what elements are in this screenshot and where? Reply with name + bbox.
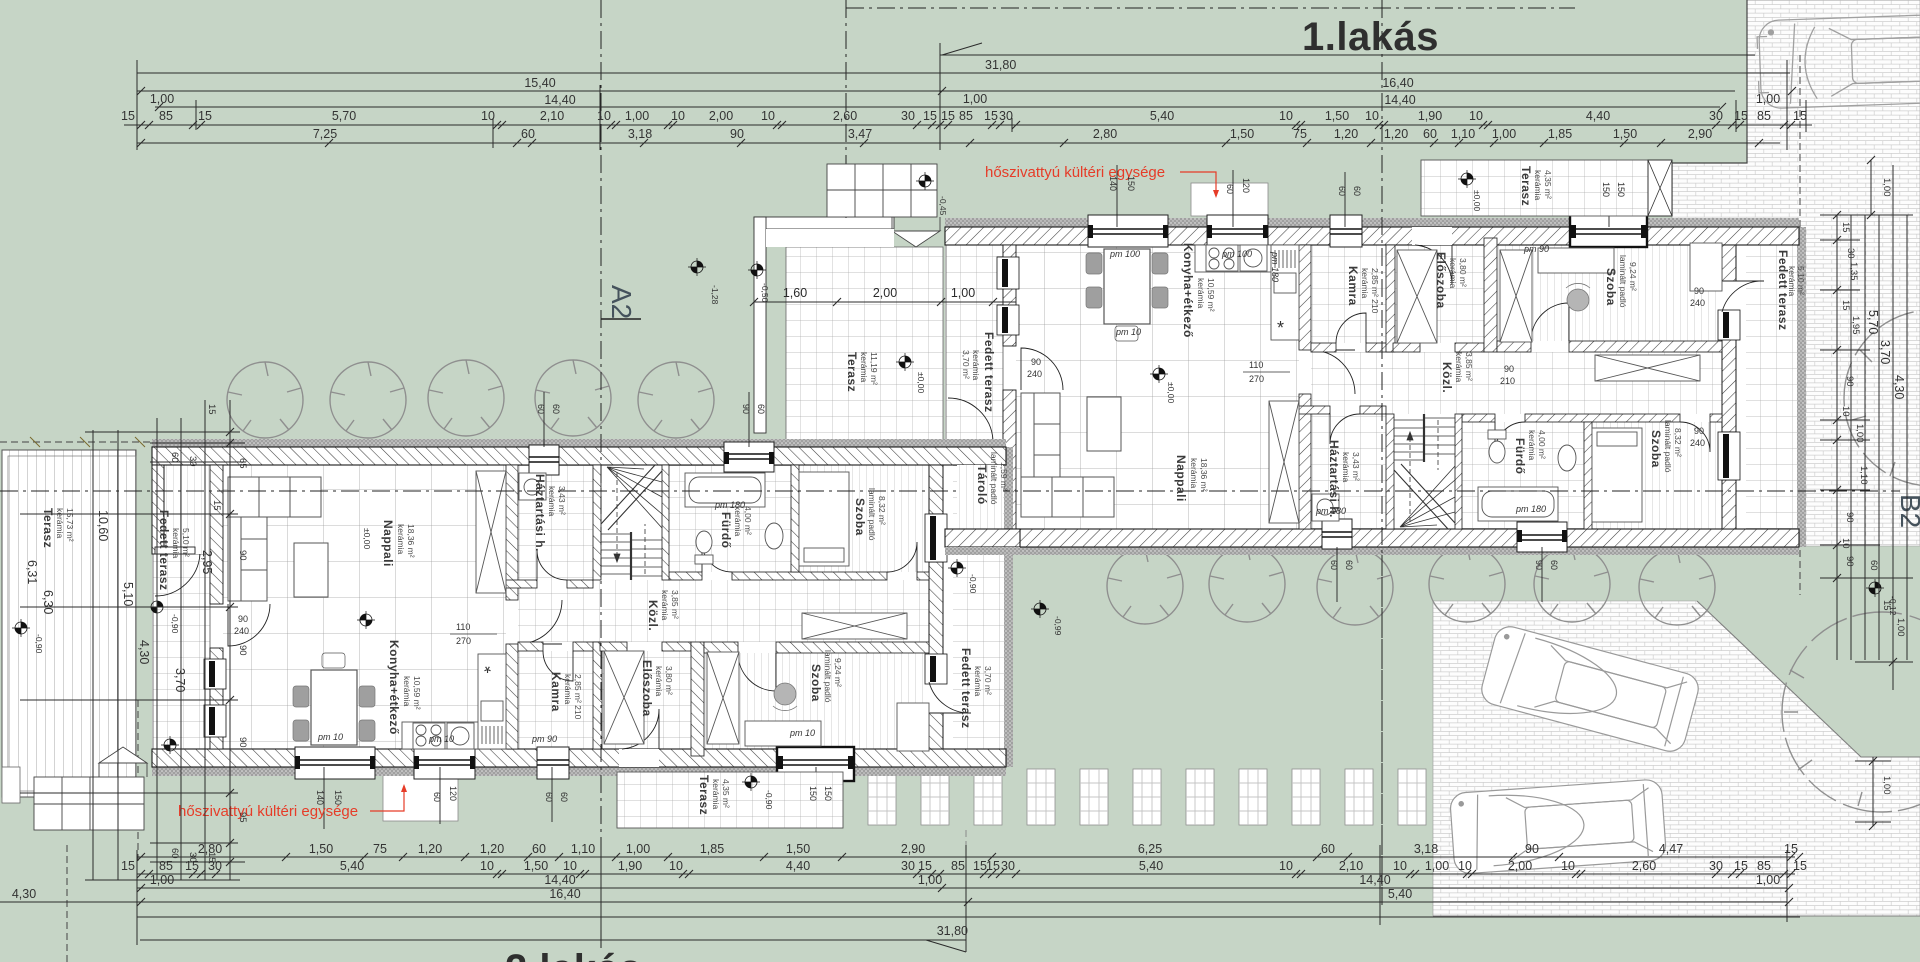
svg-text:90: 90 (1844, 376, 1855, 387)
svg-text:150: 150 (808, 786, 818, 801)
svg-text:60: 60 (551, 404, 561, 414)
svg-text:Szoba: Szoba (1649, 430, 1663, 468)
svg-text:1,00: 1,00 (951, 286, 975, 300)
svg-text:5,70: 5,70 (1866, 310, 1880, 334)
svg-text:Fedett terasz: Fedett terasz (959, 648, 973, 729)
svg-text:laminált padló: laminált padló (867, 488, 877, 541)
svg-text:15: 15 (211, 500, 222, 511)
svg-text:10: 10 (481, 109, 495, 123)
svg-text:60: 60 (544, 792, 554, 802)
svg-text:2,95: 2,95 (200, 550, 214, 574)
svg-text:60: 60 (1352, 186, 1362, 196)
svg-text:90: 90 (1031, 357, 1041, 367)
svg-text:14,40: 14,40 (544, 93, 575, 107)
svg-text:15: 15 (918, 859, 932, 873)
svg-text:85: 85 (1757, 859, 1771, 873)
svg-text:-0,99: -0,99 (1053, 616, 1063, 636)
svg-text:hőszivattyú kültéri egysége: hőszivattyú kültéri egysége (985, 164, 1165, 181)
svg-text:210: 210 (1500, 376, 1515, 386)
svg-text:1,10: 1,10 (1858, 466, 1869, 485)
svg-text:1,50: 1,50 (1230, 127, 1254, 141)
svg-text:14,40: 14,40 (1384, 93, 1415, 107)
svg-text:Kamra: Kamra (549, 672, 563, 712)
svg-text:15,40: 15,40 (524, 76, 555, 90)
svg-text:2.lakás: 2.lakás (505, 947, 642, 962)
svg-text:*: * (1277, 318, 1284, 338)
svg-text:Szoba: Szoba (853, 498, 867, 536)
svg-text:16,40: 16,40 (549, 887, 580, 901)
svg-text:1,20: 1,20 (1384, 127, 1408, 141)
svg-text:1,90: 1,90 (1418, 109, 1442, 123)
svg-text:kerámia: kerámia (1448, 258, 1458, 289)
svg-text:1,20: 1,20 (1334, 127, 1358, 141)
svg-text:15,73 m²: 15,73 m² (65, 508, 75, 542)
svg-text:pm 180: pm 180 (714, 500, 745, 510)
svg-text:1,10: 1,10 (1451, 127, 1475, 141)
svg-text:120: 120 (448, 786, 458, 801)
svg-text:2,90: 2,90 (901, 842, 925, 856)
svg-text:90: 90 (1525, 842, 1539, 856)
svg-text:15: 15 (986, 859, 1000, 873)
svg-text:240: 240 (234, 626, 249, 636)
svg-text:140: 140 (1108, 176, 1118, 191)
svg-text:9,24 m²: 9,24 m² (833, 658, 843, 687)
svg-text:pm 180: pm 180 (1270, 251, 1280, 282)
svg-text:pm 100: pm 100 (1109, 249, 1140, 259)
svg-text:10: 10 (563, 859, 577, 873)
svg-text:Konyha+étkező: Konyha+étkező (387, 640, 401, 735)
svg-text:60: 60 (169, 848, 180, 859)
svg-text:1,60: 1,60 (783, 286, 807, 300)
svg-text:10: 10 (1469, 109, 1483, 123)
svg-text:60: 60 (536, 404, 546, 414)
svg-text:2,60: 2,60 (833, 109, 857, 123)
svg-text:110: 110 (456, 622, 470, 632)
svg-text:4,40: 4,40 (1586, 109, 1610, 123)
svg-text:Terasz: Terasz (1519, 166, 1533, 206)
svg-text:10: 10 (1840, 538, 1851, 549)
svg-text:5,10 m²: 5,10 m² (181, 528, 191, 557)
svg-text:1,00: 1,00 (1756, 873, 1780, 887)
svg-text:15: 15 (984, 109, 998, 123)
svg-text:1,95: 1,95 (1850, 316, 1861, 335)
svg-text:Nappali: Nappali (381, 520, 395, 567)
svg-text:30: 30 (187, 456, 198, 467)
svg-text:Kamra: Kamra (1346, 266, 1360, 306)
svg-text:kerámia: kerámia (55, 508, 65, 539)
svg-text:10: 10 (480, 859, 494, 873)
svg-text:kerámia: kerámia (1787, 266, 1797, 297)
svg-text:Fürdő: Fürdő (1513, 438, 1527, 475)
svg-text:31,80: 31,80 (985, 58, 1016, 72)
svg-text:±0,00: ±0,00 (916, 372, 926, 393)
svg-text:240: 240 (1690, 438, 1705, 448)
svg-text:10: 10 (1279, 859, 1293, 873)
svg-text:1,00: 1,00 (1756, 92, 1780, 106)
svg-text:15: 15 (941, 109, 955, 123)
svg-text:85: 85 (159, 109, 173, 123)
svg-text:90: 90 (730, 127, 744, 141)
svg-text:1,00: 1,00 (626, 842, 650, 856)
svg-text:15: 15 (1793, 109, 1807, 123)
svg-text:±0,00: ±0,00 (1472, 190, 1482, 211)
svg-text:Fedett terasz: Fedett terasz (157, 510, 171, 591)
svg-text:Terasz: Terasz (697, 775, 711, 815)
svg-text:2,00: 2,00 (709, 109, 733, 123)
svg-text:60: 60 (169, 452, 180, 463)
svg-text:Szoba: Szoba (1604, 268, 1618, 306)
svg-text:Konyha+étkező: Konyha+étkező (1181, 243, 1195, 338)
svg-text:5,40: 5,40 (1388, 887, 1412, 901)
svg-text:1,35: 1,35 (1848, 262, 1859, 281)
svg-text:pm 10: pm 10 (1115, 327, 1141, 337)
svg-text:pm 10: pm 10 (428, 734, 454, 744)
svg-text:65: 65 (237, 458, 248, 469)
svg-text:Terasz: Terasz (845, 352, 859, 392)
svg-text:kerámia: kerámia (1189, 458, 1199, 489)
svg-text:11,19 m²: 11,19 m² (869, 352, 879, 385)
svg-text:150: 150 (1616, 182, 1626, 197)
svg-text:60: 60 (532, 842, 546, 856)
svg-text:30: 30 (187, 852, 198, 863)
svg-text:90: 90 (238, 614, 248, 624)
svg-text:1,10: 1,10 (571, 842, 595, 856)
svg-text:15: 15 (1881, 600, 1892, 611)
svg-text:-0,90: -0,90 (170, 614, 180, 634)
svg-text:10: 10 (1393, 859, 1407, 873)
svg-text:120: 120 (1241, 178, 1251, 193)
svg-text:2,10: 2,10 (540, 109, 564, 123)
svg-text:10: 10 (1458, 859, 1472, 873)
svg-text:1,00: 1,00 (625, 109, 649, 123)
svg-text:1,00: 1,00 (1425, 859, 1449, 873)
svg-text:5,10: 5,10 (121, 582, 135, 606)
svg-text:90: 90 (1694, 286, 1704, 296)
svg-text:5,70: 5,70 (332, 109, 356, 123)
svg-text:4,30: 4,30 (12, 887, 36, 901)
svg-text:pm 180: pm 180 (1315, 506, 1346, 516)
svg-text:4,30: 4,30 (1892, 375, 1906, 399)
svg-text:5,40: 5,40 (1150, 109, 1174, 123)
svg-text:1,00: 1,00 (1881, 776, 1892, 795)
svg-text:A2: A2 (606, 285, 637, 319)
svg-text:kerámia: kerámia (733, 506, 743, 537)
svg-text:7,25: 7,25 (313, 127, 337, 141)
svg-text:10: 10 (1279, 109, 1293, 123)
svg-text:60: 60 (1868, 560, 1879, 571)
svg-text:3,80 m²: 3,80 m² (664, 666, 674, 695)
svg-text:pm 10: pm 10 (789, 728, 815, 738)
svg-text:Előszoba: Előszoba (1434, 252, 1448, 309)
svg-text:60: 60 (1225, 184, 1235, 194)
svg-text:1,00: 1,00 (1895, 618, 1906, 637)
svg-text:10: 10 (761, 109, 775, 123)
svg-text:Előszoba: Előszoba (640, 660, 654, 717)
svg-text:240: 240 (1027, 369, 1042, 379)
svg-text:5,40: 5,40 (1139, 859, 1163, 873)
svg-text:-0,90: -0,90 (968, 574, 978, 594)
svg-text:Közl.: Közl. (646, 600, 660, 631)
svg-text:60: 60 (1344, 560, 1354, 570)
svg-text:kerámia: kerámia (654, 666, 664, 697)
svg-text:Háztartási h.: Háztartási h. (533, 474, 547, 552)
svg-text:1.lakás: 1.lakás (1302, 15, 1439, 59)
svg-text:2,90: 2,90 (1688, 127, 1712, 141)
svg-text:10: 10 (1561, 859, 1575, 873)
svg-text:15: 15 (1840, 222, 1851, 233)
svg-text:1,20: 1,20 (418, 842, 442, 856)
svg-text:3,47: 3,47 (848, 127, 872, 141)
svg-text:1,50: 1,50 (1325, 109, 1349, 123)
svg-text:15: 15 (1734, 859, 1748, 873)
svg-text:pm 100: pm 100 (1221, 249, 1252, 259)
svg-text:60: 60 (1423, 127, 1437, 141)
svg-text:150: 150 (333, 790, 343, 805)
svg-text:kerámia: kerámia (396, 524, 406, 555)
svg-text:18,36 m²: 18,36 m² (1199, 458, 1209, 492)
svg-text:30: 30 (1001, 859, 1015, 873)
svg-text:pm 10: pm 10 (317, 732, 343, 742)
svg-text:90: 90 (237, 737, 248, 748)
svg-text:1,85: 1,85 (1548, 127, 1572, 141)
svg-text:3,85 m²: 3,85 m² (1464, 352, 1474, 381)
svg-text:1,50: 1,50 (786, 842, 810, 856)
svg-text:kerámia: kerámia (563, 674, 573, 705)
svg-text:2,00: 2,00 (1508, 859, 1532, 873)
svg-text:Nappali: Nappali (1174, 455, 1188, 502)
svg-text:270: 270 (456, 636, 471, 646)
svg-text:1,50: 1,50 (1613, 127, 1637, 141)
svg-text:kerámia: kerámia (1533, 170, 1543, 201)
svg-text:30: 30 (901, 859, 915, 873)
svg-text:Fürdő: Fürdő (719, 512, 733, 549)
svg-text:3,70: 3,70 (1878, 340, 1892, 364)
svg-text:-0,90: -0,90 (34, 634, 44, 654)
svg-text:30: 30 (999, 109, 1013, 123)
svg-text:240: 240 (1690, 298, 1705, 308)
svg-text:4,30: 4,30 (137, 640, 151, 664)
svg-text:30: 30 (901, 109, 915, 123)
svg-text:90: 90 (741, 404, 751, 414)
svg-text:90: 90 (1844, 556, 1855, 567)
svg-text:90: 90 (1694, 426, 1704, 436)
svg-text:1,20: 1,20 (480, 842, 504, 856)
svg-text:-0,50: -0,50 (760, 283, 770, 303)
svg-text:4,00 m²: 4,00 m² (743, 506, 753, 535)
svg-text:4,47: 4,47 (1659, 842, 1683, 856)
svg-text:3,85 m²: 3,85 m² (670, 590, 680, 619)
svg-text:Tároló: Tároló (975, 465, 989, 505)
svg-text:3,43 m²: 3,43 m² (557, 486, 567, 515)
svg-text:1,00: 1,00 (963, 92, 987, 106)
svg-text:laminált padló: laminált padló (823, 650, 833, 703)
svg-text:10,59 m²: 10,59 m² (412, 676, 422, 710)
svg-text:30: 30 (1709, 109, 1723, 123)
svg-text:90: 90 (237, 550, 248, 561)
svg-text:kerámia: kerámia (660, 590, 670, 621)
svg-text:laminált padló: laminált padló (989, 452, 999, 505)
svg-text:14,40: 14,40 (1359, 873, 1390, 887)
svg-text:15: 15 (973, 859, 987, 873)
svg-text:-1,28: -1,28 (710, 285, 720, 305)
svg-text:8,32 m²: 8,32 m² (1673, 428, 1683, 457)
svg-text:3,43 m²: 3,43 m² (1351, 452, 1361, 481)
svg-text:pm 90: pm 90 (1523, 244, 1549, 254)
svg-text:85: 85 (159, 859, 173, 873)
svg-text:15: 15 (1734, 109, 1748, 123)
svg-text:3,18: 3,18 (1414, 842, 1438, 856)
svg-text:1,50: 1,50 (309, 842, 333, 856)
svg-text:6,31: 6,31 (25, 560, 39, 584)
svg-text:3,70 m²: 3,70 m² (961, 350, 971, 379)
svg-text:31,80: 31,80 (937, 924, 968, 938)
svg-text:-0,45: -0,45 (938, 196, 948, 216)
svg-text:1,00: 1,00 (1492, 127, 1516, 141)
svg-text:90: 90 (1504, 364, 1514, 374)
svg-text:2,80: 2,80 (1093, 127, 1117, 141)
svg-text:1,50: 1,50 (524, 859, 548, 873)
svg-text:60: 60 (521, 127, 535, 141)
svg-text:10: 10 (597, 109, 611, 123)
svg-text:1,00: 1,00 (150, 92, 174, 106)
svg-text:±0,00: ±0,00 (362, 528, 372, 549)
svg-text:150: 150 (1601, 182, 1611, 197)
svg-text:85: 85 (959, 109, 973, 123)
svg-text:140: 140 (315, 790, 325, 805)
svg-text:kerámia: kerámia (1196, 278, 1206, 309)
svg-text:laminált padló: laminált padló (1618, 255, 1628, 308)
svg-text:6,25: 6,25 (1138, 842, 1162, 856)
svg-text:15: 15 (923, 109, 937, 123)
svg-text:15: 15 (1793, 859, 1807, 873)
svg-text:10: 10 (669, 859, 683, 873)
svg-text:9,24 m²: 9,24 m² (1628, 262, 1638, 291)
svg-text:60: 60 (432, 792, 442, 802)
svg-text:10: 10 (1840, 406, 1851, 417)
svg-text:14,40: 14,40 (544, 873, 575, 887)
svg-text:85: 85 (951, 859, 965, 873)
svg-text:75: 75 (1293, 127, 1307, 141)
svg-text:5,10 m²: 5,10 m² (1796, 266, 1806, 295)
svg-text:kerámia: kerámia (547, 486, 557, 517)
svg-text:15: 15 (198, 109, 212, 123)
svg-text:30: 30 (1845, 248, 1856, 259)
svg-text:±0,00: ±0,00 (1166, 382, 1176, 403)
svg-text:kerámia: kerámia (1527, 430, 1537, 461)
svg-text:3,18: 3,18 (628, 127, 652, 141)
svg-text:4,40: 4,40 (786, 859, 810, 873)
svg-text:1,00: 1,00 (1854, 424, 1865, 443)
svg-text:60: 60 (559, 792, 569, 802)
svg-text:kerámia: kerámia (973, 666, 983, 697)
svg-text:10,60: 10,60 (96, 510, 110, 541)
svg-text:6,30: 6,30 (41, 590, 55, 614)
svg-text:Közl.: Közl. (1440, 362, 1454, 393)
svg-text:110: 110 (1249, 360, 1263, 370)
svg-text:4,00 m²: 4,00 m² (1537, 430, 1547, 459)
svg-text:Fedett terasz: Fedett terasz (982, 332, 996, 413)
svg-text:15: 15 (206, 852, 217, 863)
svg-text:30: 30 (1709, 859, 1723, 873)
svg-text:3,80 m²: 3,80 m² (1458, 258, 1468, 287)
svg-text:150: 150 (1126, 176, 1136, 191)
svg-text:kerámia: kerámia (1360, 268, 1370, 299)
svg-text:Szoba: Szoba (809, 664, 823, 702)
svg-text:kerámia: kerámia (171, 528, 181, 559)
svg-text:60: 60 (756, 404, 766, 414)
svg-text:3,70: 3,70 (173, 668, 187, 692)
svg-text:150: 150 (823, 786, 833, 801)
svg-text:1,90: 1,90 (618, 859, 642, 873)
svg-text:1,00: 1,00 (1881, 178, 1892, 197)
svg-text:16,40: 16,40 (1382, 76, 1413, 90)
svg-text:10: 10 (671, 109, 685, 123)
svg-text:90: 90 (237, 645, 248, 656)
svg-text:kerámia: kerámia (402, 676, 412, 707)
svg-text:15: 15 (121, 109, 135, 123)
svg-text:kerámia: kerámia (1341, 452, 1351, 483)
svg-text:1,59 m²: 1,59 m² (999, 462, 1009, 491)
svg-text:95: 95 (237, 812, 248, 823)
svg-text:laminált padló: laminált padló (1663, 420, 1673, 473)
svg-text:kerámia: kerámia (1454, 352, 1464, 383)
svg-text:1,85: 1,85 (700, 842, 724, 856)
svg-text:-0,90: -0,90 (764, 790, 774, 810)
svg-text:60: 60 (1329, 560, 1339, 570)
svg-text:4,35 m²: 4,35 m² (721, 779, 731, 808)
svg-text:60: 60 (1549, 560, 1559, 570)
svg-text:10: 10 (1365, 109, 1379, 123)
svg-text:60: 60 (1321, 842, 1335, 856)
svg-text:8,32 m²: 8,32 m² (877, 496, 887, 525)
svg-text:18,36 m²: 18,36 m² (406, 524, 416, 558)
svg-text:15: 15 (1784, 842, 1798, 856)
svg-text:1,00: 1,00 (918, 873, 942, 887)
svg-text:pm 90: pm 90 (531, 734, 557, 744)
svg-text:2,85 m² 210: 2,85 m² 210 (573, 674, 583, 720)
svg-text:90: 90 (1844, 512, 1855, 523)
svg-text:kerámia: kerámia (711, 779, 721, 810)
svg-text:90: 90 (1534, 560, 1544, 570)
svg-text:15: 15 (121, 859, 135, 873)
svg-text:2,60: 2,60 (1632, 859, 1656, 873)
svg-text:kerámia: kerámia (971, 350, 981, 381)
svg-text:3,70 m²: 3,70 m² (983, 666, 993, 695)
svg-text:2,00: 2,00 (873, 286, 897, 300)
svg-text:270: 270 (1249, 374, 1264, 384)
svg-text:kerámia: kerámia (859, 352, 869, 383)
svg-text:pm 180: pm 180 (1515, 504, 1546, 514)
svg-text:15: 15 (206, 404, 217, 415)
svg-text:4,35 m²: 4,35 m² (1543, 170, 1553, 199)
svg-text:60: 60 (1337, 186, 1347, 196)
svg-text:75: 75 (373, 842, 387, 856)
svg-text:15: 15 (1840, 300, 1851, 311)
svg-text:5,40: 5,40 (340, 859, 364, 873)
svg-text:85: 85 (1757, 109, 1771, 123)
svg-text:10,59 m²: 10,59 m² (1206, 278, 1216, 312)
svg-text:2,10: 2,10 (1339, 859, 1363, 873)
svg-text:2,85 m² 210: 2,85 m² 210 (1370, 268, 1380, 314)
